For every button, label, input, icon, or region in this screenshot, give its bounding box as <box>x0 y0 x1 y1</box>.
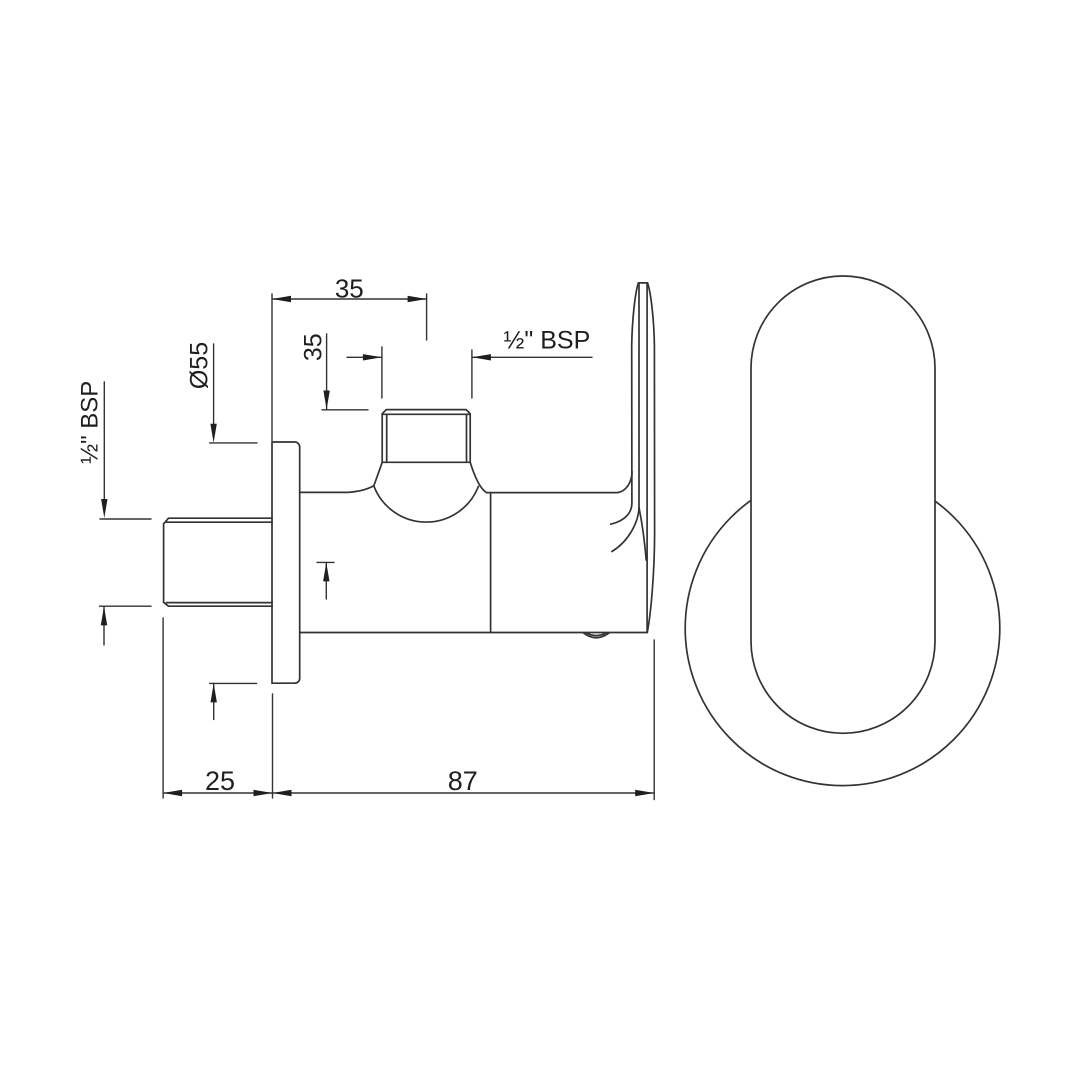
svg-text:87: 87 <box>448 766 478 796</box>
svg-text:35: 35 <box>335 274 364 304</box>
svg-text:½" BSP: ½" BSP <box>77 381 104 464</box>
svg-text:25: 25 <box>205 766 235 796</box>
svg-text:½" BSP: ½" BSP <box>504 327 591 355</box>
svg-text:Ø55: Ø55 <box>186 342 214 389</box>
svg-text:35: 35 <box>300 333 328 361</box>
